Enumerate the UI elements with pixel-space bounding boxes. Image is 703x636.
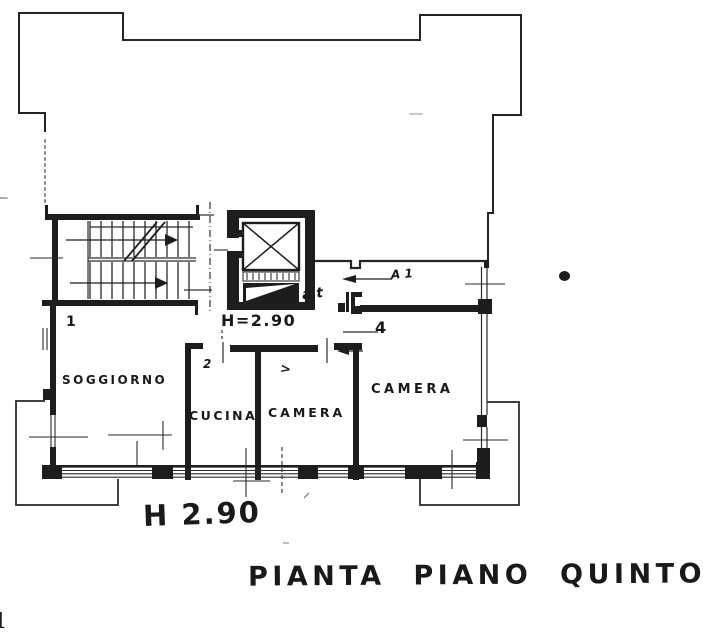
staircase <box>30 205 200 315</box>
door-mark-camera-right: 4 <box>375 320 386 336</box>
room-label-cucina: CUCINA <box>189 410 257 423</box>
balcony-right <box>420 402 519 505</box>
door-mark-camera-left: > <box>279 362 292 376</box>
room-number-soggiorno: 1 <box>66 315 76 329</box>
loggia-arrow <box>342 275 392 283</box>
east-wall-windows <box>477 261 492 464</box>
height-note-hall: H=2.90 <box>221 313 296 329</box>
elevator-shaft <box>214 210 315 310</box>
elevator-cab-x-icon <box>243 223 299 270</box>
hall-handwriting: a t <box>301 286 323 302</box>
room-label-camera-left: CAMERA <box>268 407 345 420</box>
page-corner-mark: 1 <box>0 611 7 632</box>
floor-plan-scan: SOGGIORNO CUCINA CAMERA CAMERA H=2.90 H … <box>0 0 703 636</box>
balcony-door <box>338 292 362 314</box>
section-axis-line <box>184 202 222 342</box>
loggia-mark: A 1 <box>391 267 414 280</box>
room-label-camera-right: CAMERA <box>371 383 454 396</box>
elevator-hatch-band <box>243 272 299 281</box>
balcony-left <box>16 401 118 505</box>
room-label-soggiorno: SOGGIORNO <box>62 374 167 386</box>
stair-landing-lines <box>88 221 196 299</box>
height-note-main: H 2.90 <box>143 498 262 531</box>
floor-plan-drawing <box>0 0 703 636</box>
ink-dot <box>559 271 570 281</box>
elevator-solid-block <box>243 283 299 304</box>
door-mark-cucina: 2 <box>203 358 211 370</box>
south-window-band <box>42 462 490 481</box>
drawing-title: PIANTA PIANO QUINTO <box>248 560 703 590</box>
stair-treads <box>90 221 189 299</box>
